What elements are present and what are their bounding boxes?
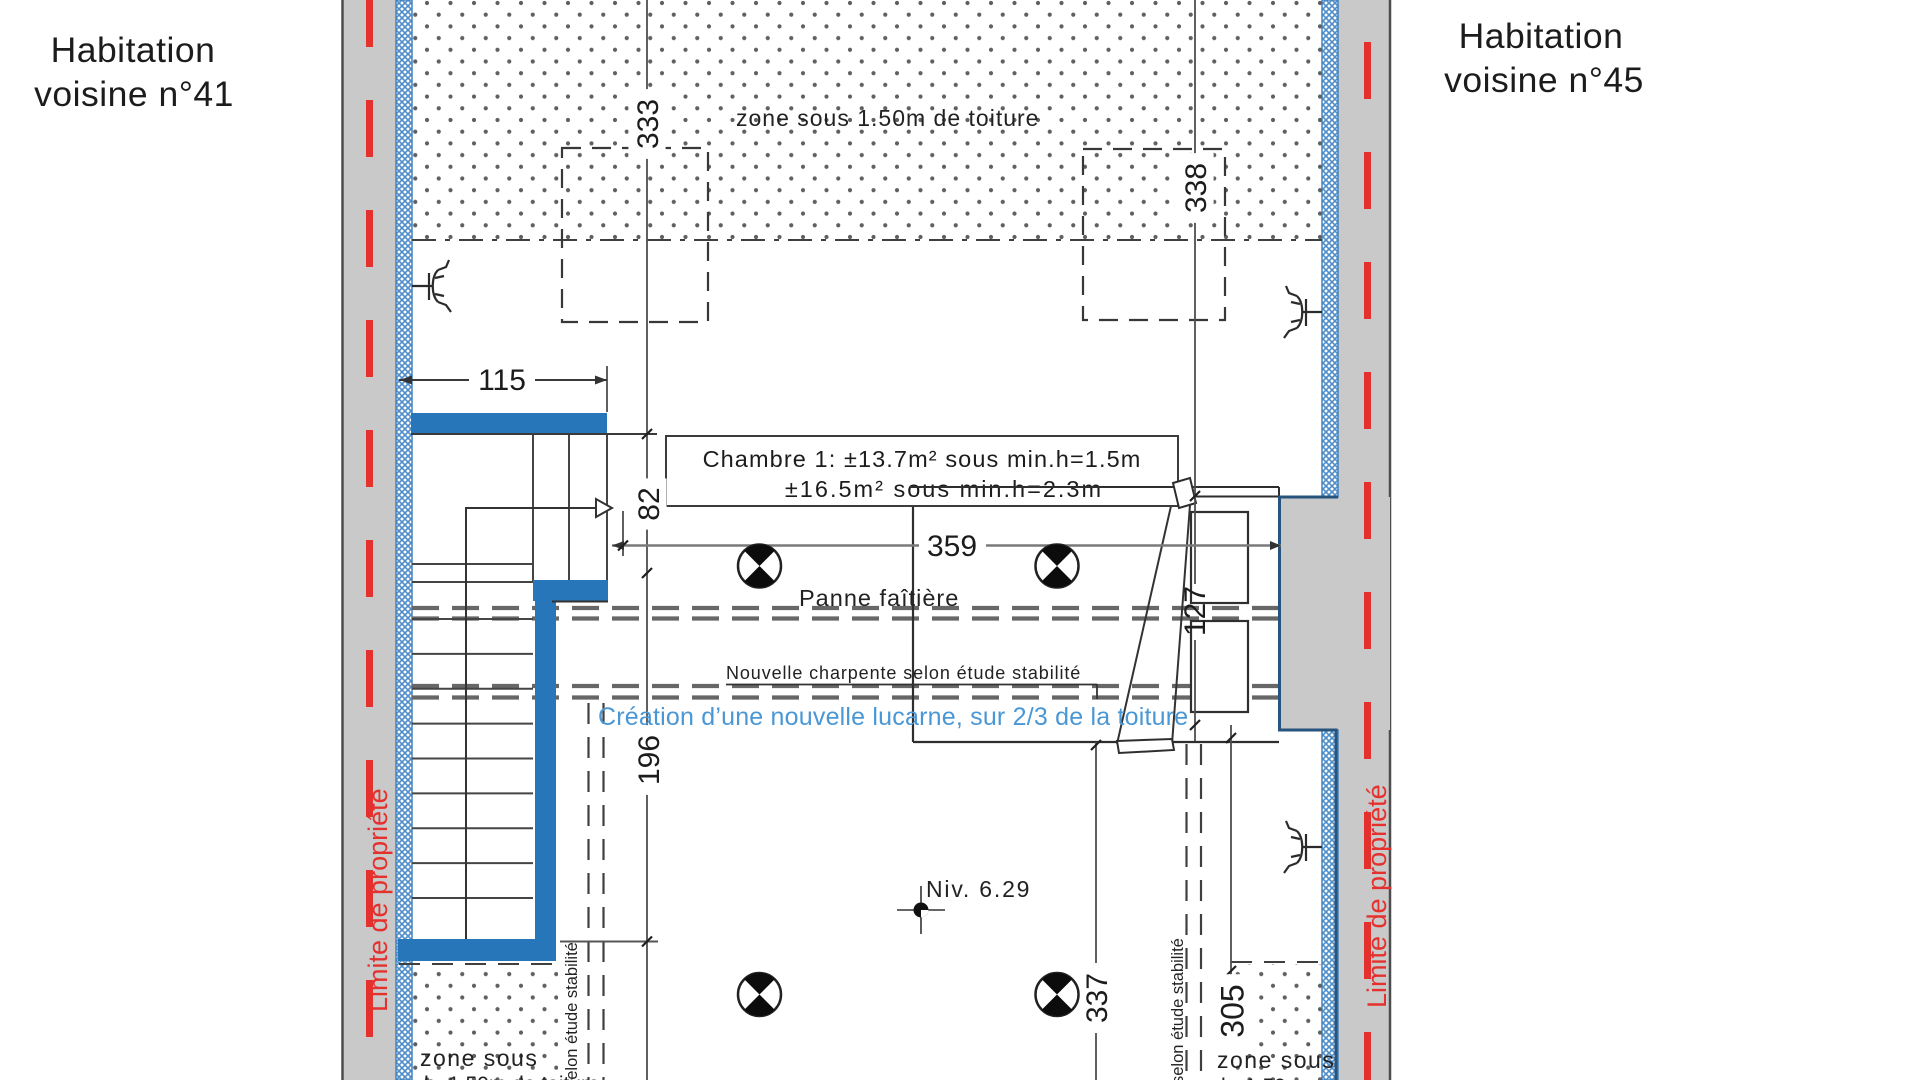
svg-text:zone sous: zone sous (1217, 1047, 1335, 1073)
svg-text:115: 115 (478, 364, 526, 397)
svg-text:Habitation: Habitation (1459, 16, 1624, 56)
svg-text:zone sous 1.50m de toiture: zone sous 1.50m de toiture (736, 105, 1039, 131)
svg-text:Nouvelle charpente selon étude: Nouvelle charpente selon étude stabilité (726, 663, 1081, 683)
svg-text:305: 305 (1215, 984, 1251, 1037)
svg-text:Niv. 6.29: Niv. 6.29 (926, 876, 1031, 902)
svg-text:±16.5m² sous min.h=2.3m: ±16.5m² sous min.h=2.3m (785, 476, 1103, 502)
svg-text:Création d’une nouvelle lucarn: Création d’une nouvelle lucarne, sur 2/3… (598, 703, 1188, 731)
svg-text:Limite de propriété: Limite de propriété (363, 788, 393, 1012)
svg-text:196: 196 (633, 735, 666, 785)
svg-text:voisine n°45: voisine n°45 (1444, 60, 1644, 100)
svg-text:Habitation: Habitation (51, 30, 216, 70)
svg-text:359: 359 (927, 530, 977, 563)
svg-text:selon étude stabilité: selon étude stabilité (563, 942, 581, 1080)
svg-text:127: 127 (1179, 586, 1212, 636)
svg-text:82: 82 (633, 487, 666, 520)
svg-text:338: 338 (1180, 163, 1213, 213)
svg-text:Chambre 1: ±13.7m² sous min.h=: Chambre 1: ±13.7m² sous min.h=1.5m (703, 446, 1142, 472)
svg-text:Panne faîtière: Panne faîtière (799, 585, 959, 611)
svg-text:Limite de propriété: Limite de propriété (1362, 784, 1392, 1008)
svg-text:337: 337 (1081, 973, 1114, 1023)
svg-text:333: 333 (632, 99, 665, 149)
svg-text:zone sous: zone sous (420, 1045, 538, 1071)
svg-text:h=1.50m: h=1.50m (1221, 1075, 1303, 1080)
svg-text:voisine n°41: voisine n°41 (34, 74, 234, 114)
svg-text:selon étude stabilité: selon étude stabilité (1169, 938, 1187, 1080)
